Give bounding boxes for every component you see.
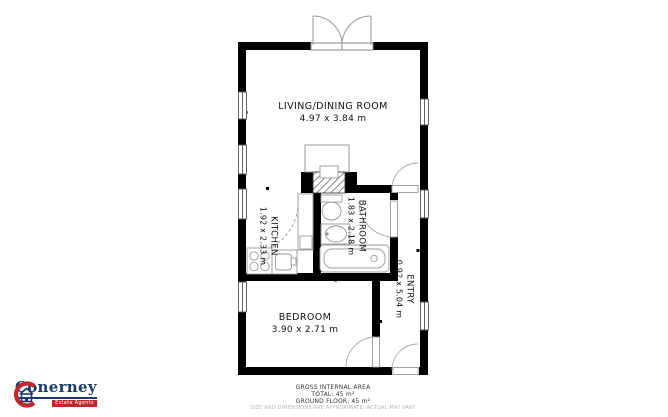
- room-dims: 1.83 x 2.18 m: [346, 197, 356, 255]
- french-doors-icon: [311, 16, 373, 50]
- floorplan-page: LIVING/DINING ROOM 4.97 x 3.84 m KITCHEN…: [0, 0, 668, 417]
- room-dims: 1.92 x 2.33 m: [258, 207, 268, 265]
- door-bedroom: [346, 337, 380, 367]
- room-name: ENTRY: [404, 260, 415, 318]
- counter-appliance-icon: [300, 236, 312, 249]
- agency-logo: Conerney Estate Agents: [13, 379, 97, 407]
- front-door: [392, 344, 418, 375]
- room-dims: 3.90 x 2.71 m: [238, 324, 372, 336]
- room-dims: 4.97 x 3.84 m: [238, 113, 428, 125]
- door-entry-to-living: [392, 163, 418, 193]
- window-icon: [421, 302, 429, 330]
- window-icon: [239, 282, 247, 312]
- room-label-bathroom: BATHROOM 1.83 x 2.18 m: [346, 197, 367, 255]
- floorplan-drawing: [0, 0, 668, 417]
- room-name: KITCHEN: [268, 207, 279, 265]
- room-name: LIVING/DINING ROOM: [238, 100, 428, 113]
- logo-tagline: Estate Agents: [52, 400, 97, 407]
- room-label-bedroom: BEDROOM 3.90 x 2.71 m: [238, 311, 372, 336]
- toilet-icon: [321, 195, 342, 220]
- door-swing-icon: [392, 344, 418, 370]
- gross-internal-area-label: GROSS INTERNAL AREA: [213, 384, 453, 391]
- door-swing-icon: [346, 337, 376, 367]
- door-leaf: [393, 368, 418, 375]
- window-icon: [239, 145, 247, 174]
- room-name: BEDROOM: [238, 311, 372, 324]
- ground-floor-area-value: GROUND FLOOR: 45 m²: [213, 398, 453, 405]
- door-leaf: [392, 186, 418, 193]
- window-icon: [421, 190, 429, 218]
- room-name: BATHROOM: [356, 197, 367, 255]
- area-summary: GROSS INTERNAL AREA TOTAL: 45 m² GROUND …: [213, 384, 453, 412]
- disclaimer-text: SIZE AND DIMENSIONS ARE APPROXIMATE, ACT…: [213, 405, 453, 412]
- room-label-entry: ENTRY 0.92 x 5.04 m: [394, 260, 415, 318]
- room-dims: 0.92 x 5.04 m: [394, 260, 404, 318]
- window-icon: [239, 189, 247, 219]
- logo-c-house-icon: [13, 381, 40, 408]
- door-leaf: [373, 337, 380, 367]
- room-label-kitchen: KITCHEN 1.92 x 2.33 m: [258, 207, 279, 265]
- door-leaf: [391, 201, 398, 237]
- room-label-living: LIVING/DINING ROOM 4.97 x 3.84 m: [238, 100, 428, 125]
- total-area-value: TOTAL: 45 m²: [213, 391, 453, 398]
